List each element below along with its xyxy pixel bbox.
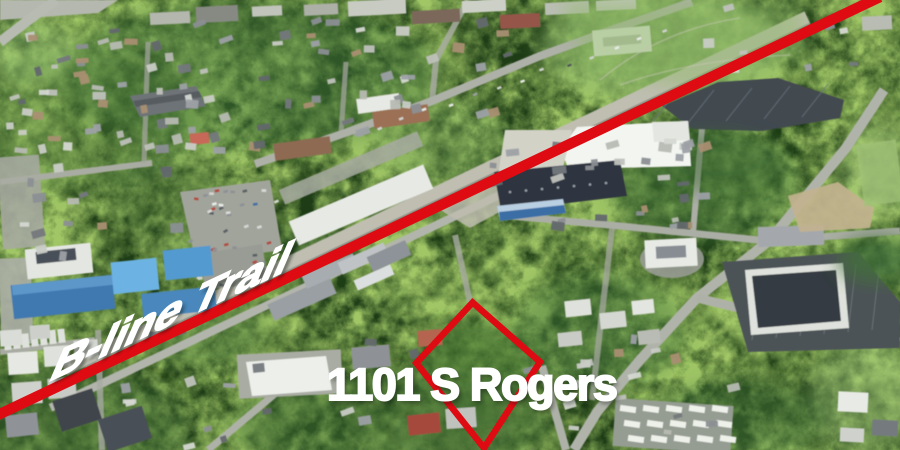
svg-text:1101 S Roɡers: 1101 S Roɡers <box>327 359 617 410</box>
